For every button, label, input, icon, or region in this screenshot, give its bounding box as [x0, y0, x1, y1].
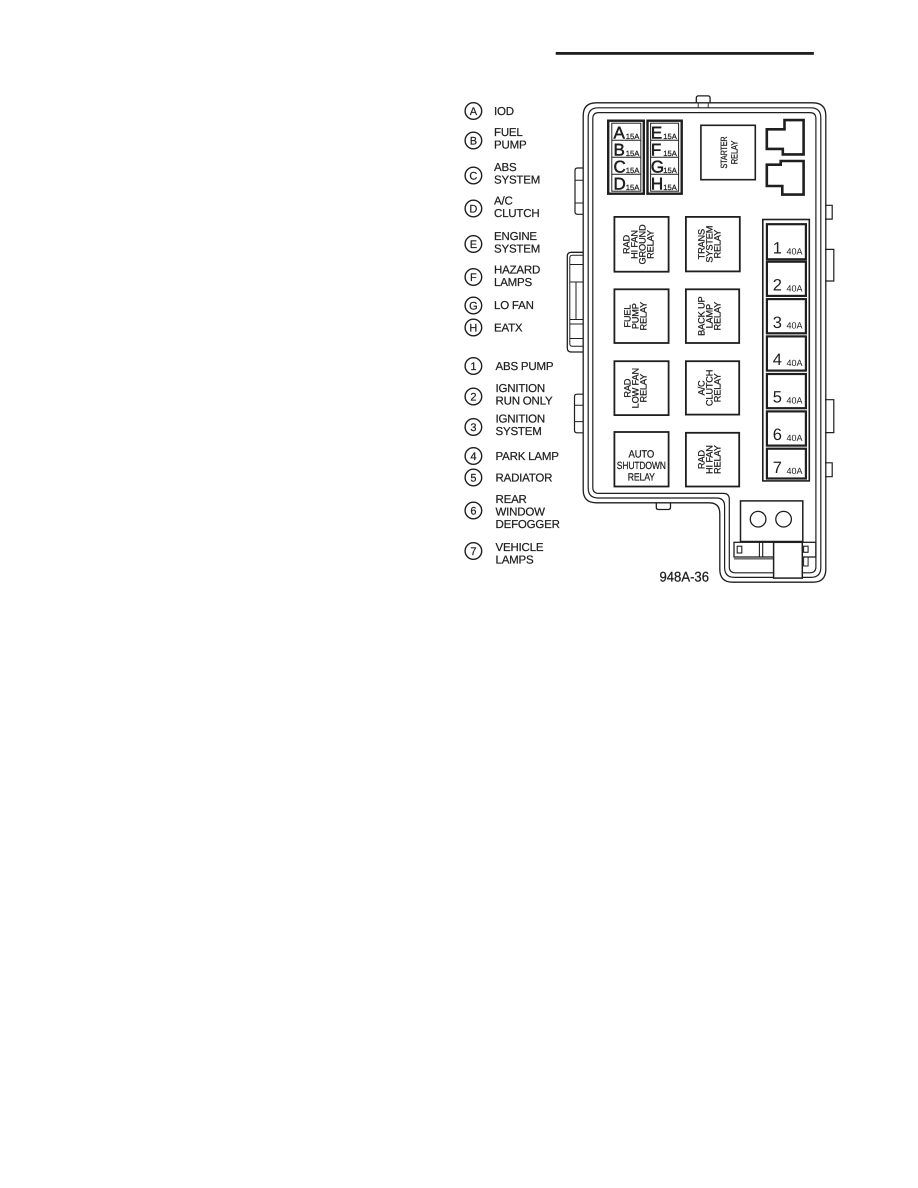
svg-text:15A: 15A	[663, 132, 677, 141]
svg-text:7: 7	[773, 459, 782, 477]
svg-text:H: H	[651, 175, 663, 194]
svg-text:948A-36: 948A-36	[660, 569, 710, 585]
svg-text:15A: 15A	[663, 183, 677, 192]
svg-text:B: B	[470, 136, 477, 148]
svg-text:SYSTEM: SYSTEM	[494, 175, 540, 187]
svg-text:G: G	[469, 301, 478, 313]
svg-text:2: 2	[773, 277, 782, 295]
svg-text:F: F	[470, 272, 477, 284]
svg-text:A: A	[470, 106, 478, 118]
svg-text:LAMPS: LAMPS	[494, 277, 533, 289]
svg-text:RUN ONLY: RUN ONLY	[496, 396, 554, 408]
svg-text:15A: 15A	[626, 132, 640, 141]
svg-text:1: 1	[470, 361, 476, 373]
svg-text:ABS PUMP: ABS PUMP	[496, 361, 554, 373]
svg-text:SYSTEM: SYSTEM	[494, 244, 540, 256]
svg-text:C: C	[469, 171, 477, 183]
svg-text:40A: 40A	[787, 283, 803, 293]
svg-text:5: 5	[773, 389, 782, 407]
svg-text:1: 1	[773, 240, 782, 258]
svg-text:A/C: A/C	[494, 196, 513, 208]
svg-text:RELAY: RELAY	[730, 141, 740, 165]
svg-text:IOD: IOD	[494, 106, 514, 118]
svg-text:REAR: REAR	[496, 494, 527, 506]
svg-text:CLUTCH: CLUTCH	[494, 208, 539, 220]
svg-text:40A: 40A	[787, 321, 803, 331]
svg-text:EATX: EATX	[494, 323, 523, 335]
svg-text:3: 3	[773, 314, 782, 332]
svg-text:4: 4	[470, 451, 476, 463]
svg-text:RELAY: RELAY	[628, 471, 655, 483]
svg-text:3: 3	[470, 422, 476, 434]
svg-text:4: 4	[773, 351, 782, 369]
svg-text:PUMP: PUMP	[494, 140, 527, 152]
svg-text:WINDOW: WINDOW	[496, 507, 546, 519]
svg-text:RELAY: RELAY	[713, 302, 723, 331]
svg-text:2: 2	[470, 392, 476, 404]
svg-text:SHUTDOWN: SHUTDOWN	[617, 460, 666, 472]
svg-text:LAMPS: LAMPS	[496, 555, 535, 567]
svg-text:RADIATOR: RADIATOR	[496, 473, 553, 485]
svg-text:SYSTEM: SYSTEM	[496, 426, 542, 438]
svg-text:STARTER: STARTER	[719, 136, 729, 168]
svg-text:5: 5	[470, 473, 476, 485]
svg-text:D: D	[614, 175, 626, 194]
svg-text:15A: 15A	[626, 166, 640, 175]
svg-text:40A: 40A	[787, 466, 803, 476]
svg-text:ENGINE: ENGINE	[494, 231, 537, 243]
svg-text:6: 6	[773, 426, 782, 444]
svg-text:RELAY: RELAY	[713, 230, 723, 259]
svg-text:E: E	[470, 239, 477, 251]
svg-text:LO FAN: LO FAN	[494, 300, 534, 312]
svg-text:15A: 15A	[663, 149, 677, 158]
svg-text:ABS: ABS	[494, 162, 517, 174]
svg-text:40A: 40A	[787, 433, 803, 443]
svg-text:7: 7	[470, 546, 476, 558]
svg-text:VEHICLE: VEHICLE	[496, 542, 544, 554]
svg-text:D: D	[469, 204, 477, 216]
svg-text:15A: 15A	[626, 183, 640, 192]
svg-text:40A: 40A	[787, 396, 803, 406]
svg-text:IGNITION: IGNITION	[496, 383, 546, 395]
svg-text:RELAY: RELAY	[639, 374, 649, 403]
svg-text:40A: 40A	[787, 246, 803, 256]
svg-text:40A: 40A	[787, 358, 803, 368]
svg-text:H: H	[469, 323, 477, 335]
svg-text:IGNITION: IGNITION	[496, 414, 546, 426]
svg-text:FUEL: FUEL	[494, 127, 523, 139]
svg-text:15A: 15A	[626, 149, 640, 158]
svg-text:6: 6	[470, 506, 476, 518]
svg-text:RELAY: RELAY	[713, 445, 723, 474]
svg-text:DEFOGGER: DEFOGGER	[496, 519, 560, 531]
svg-text:RELAY: RELAY	[646, 230, 656, 259]
svg-text:RELAY: RELAY	[713, 374, 723, 403]
svg-text:RELAY: RELAY	[639, 302, 649, 331]
svg-text:AUTO: AUTO	[629, 449, 655, 461]
svg-text:15A: 15A	[663, 166, 677, 175]
svg-text:HAZARD: HAZARD	[494, 265, 540, 277]
svg-text:PARK LAMP: PARK LAMP	[496, 451, 560, 463]
